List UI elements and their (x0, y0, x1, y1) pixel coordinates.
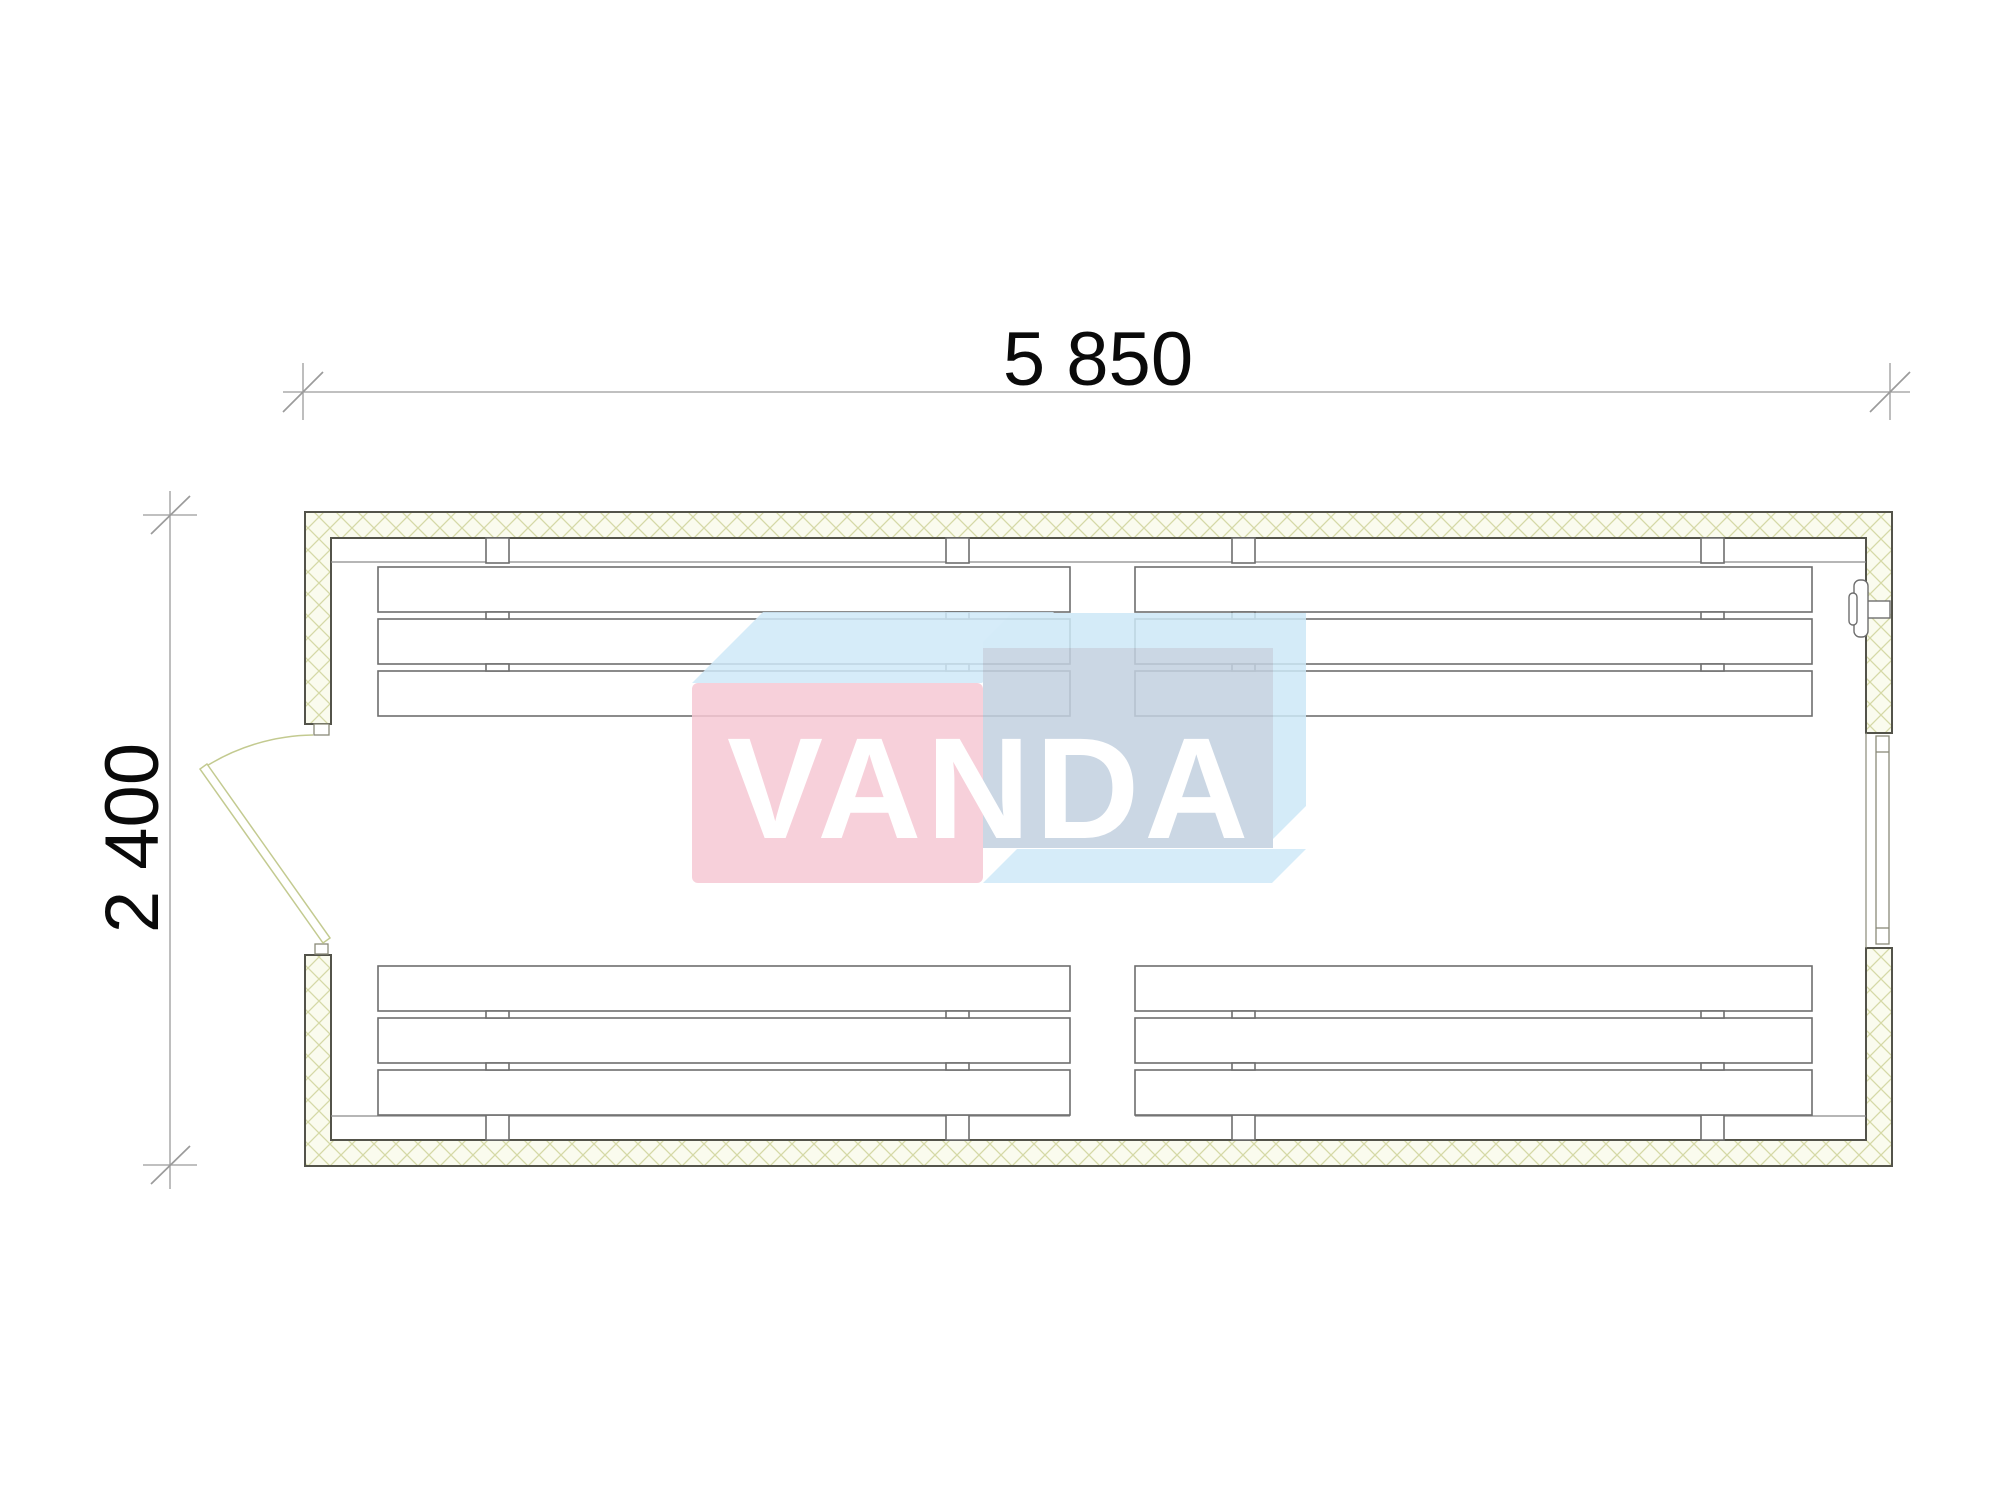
bench-leg (1232, 538, 1255, 563)
bench-leg-notch (486, 1011, 509, 1018)
window-opening (1863, 733, 1895, 948)
bench-slat (378, 567, 1070, 612)
door-jamb-bottom (315, 944, 328, 954)
bench-leg-notch (1232, 1063, 1255, 1070)
bench-leg-notch (486, 1063, 509, 1070)
dimension-width: 5 850 (283, 317, 1910, 420)
bench-leg (486, 538, 509, 563)
door-swing-arc (205, 735, 313, 767)
bench-leg (1232, 1115, 1255, 1140)
width-dimension-label: 5 850 (1003, 317, 1193, 402)
bench-leg (1701, 1115, 1724, 1140)
door-jamb-top (314, 724, 329, 735)
floor-plan-drawing: 5 850 2 400 VANDA (0, 0, 2000, 1500)
bench-slat (378, 1070, 1070, 1115)
bench-leg (1701, 538, 1724, 563)
bench-leg (946, 1115, 969, 1140)
bench-slat (1135, 966, 1812, 1011)
dimension-height: 2 400 (90, 491, 197, 1189)
bench-leg-notch (946, 1063, 969, 1070)
bench-slat (1135, 1018, 1812, 1063)
bench-leg-notch (1701, 612, 1724, 619)
floor-plan-page: 5 850 2 400 VANDA (0, 0, 2000, 1500)
bench-leg-notch (1701, 1063, 1724, 1070)
bench-leg-notch (1701, 1011, 1724, 1018)
bench-slat (1135, 1070, 1812, 1115)
height-dimension-label: 2 400 (90, 743, 175, 933)
bench-slat (378, 966, 1070, 1011)
bench-leg-notch (486, 664, 509, 671)
bench-leg-notch (1232, 1011, 1255, 1018)
fixture-knob-cap (1849, 593, 1857, 625)
window-frame (1876, 736, 1889, 944)
bench-slat (1135, 567, 1812, 612)
vanda-watermark: VANDA (692, 612, 1306, 883)
bench-slat (378, 1018, 1070, 1063)
fixture-stem (1866, 601, 1890, 618)
bench-leg (946, 538, 969, 563)
watermark-text: VANDA (727, 708, 1253, 869)
bench-leg (486, 1115, 509, 1140)
bench-leg-notch (946, 1011, 969, 1018)
bench-leg-notch (486, 612, 509, 619)
bench-leg-notch (1701, 664, 1724, 671)
